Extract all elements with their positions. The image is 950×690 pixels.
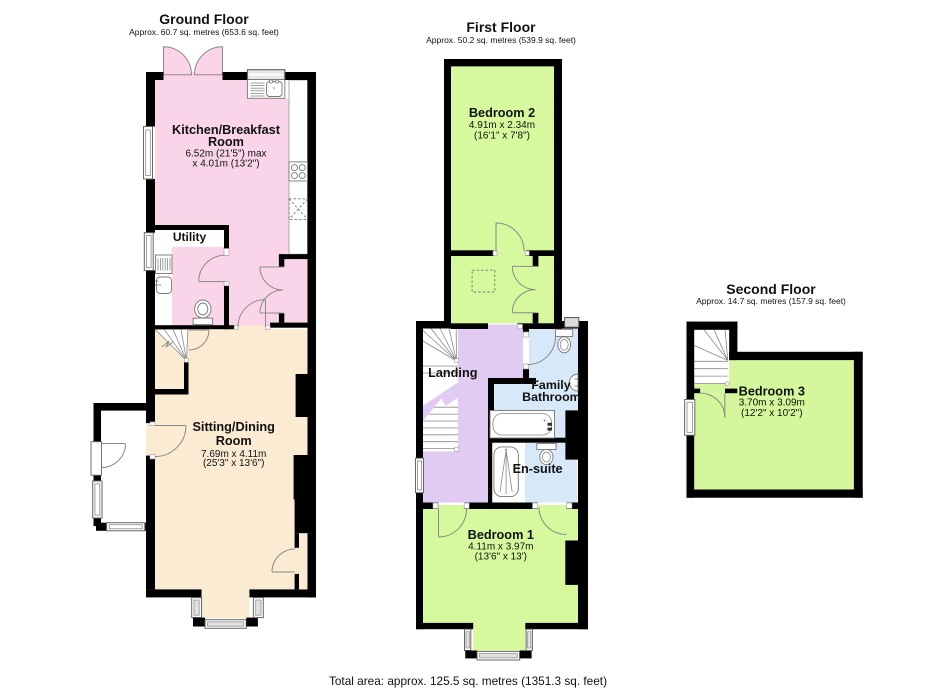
svg-text:Bedroom 2: Bedroom 2	[469, 106, 535, 120]
svg-text:Total area: approx. 125.5 sq.: Total area: approx. 125.5 sq. metres (13…	[329, 674, 607, 688]
svg-text:(12'2" x 10'2"): (12'2" x 10'2")	[741, 408, 803, 419]
svg-text:3.70m x 3.09m: 3.70m x 3.09m	[739, 398, 805, 409]
svg-text:Second Floor: Second Floor	[726, 281, 816, 297]
svg-text:Sitting/Dining: Sitting/Dining	[192, 420, 274, 434]
svg-text:(25'3" x 13'6"): (25'3" x 13'6")	[203, 458, 265, 469]
svg-text:4.91m x 2.34m: 4.91m x 2.34m	[469, 120, 535, 131]
svg-text:(13'6" x 13'): (13'6" x 13')	[475, 552, 527, 563]
svg-text:Approx. 60.7 sq. metres (653.6: Approx. 60.7 sq. metres (653.6 sq. feet)	[129, 27, 279, 37]
svg-text:Room: Room	[216, 434, 252, 448]
svg-text:Approx. 50.2 sq. metres (539.9: Approx. 50.2 sq. metres (539.9 sq. feet)	[426, 35, 576, 45]
svg-text:Ground Floor: Ground Floor	[159, 11, 249, 27]
svg-text:Room: Room	[208, 135, 244, 149]
svg-text:x 4.01m (13'2"): x 4.01m (13'2")	[192, 159, 259, 170]
svg-text:Bedroom 1: Bedroom 1	[468, 528, 534, 542]
svg-text:Approx. 14.7 sq. metres (157.9: Approx. 14.7 sq. metres (157.9 sq. feet)	[696, 296, 846, 306]
svg-text:Bathroom: Bathroom	[522, 390, 581, 404]
svg-text:Bedroom 3: Bedroom 3	[739, 385, 805, 399]
svg-text:(16'1" x 7'8"): (16'1" x 7'8")	[474, 131, 530, 142]
svg-text:En-suite: En-suite	[513, 462, 563, 476]
svg-text:Landing: Landing	[428, 366, 477, 380]
svg-text:First Floor: First Floor	[466, 19, 536, 35]
svg-text:Utility: Utility	[173, 230, 207, 244]
